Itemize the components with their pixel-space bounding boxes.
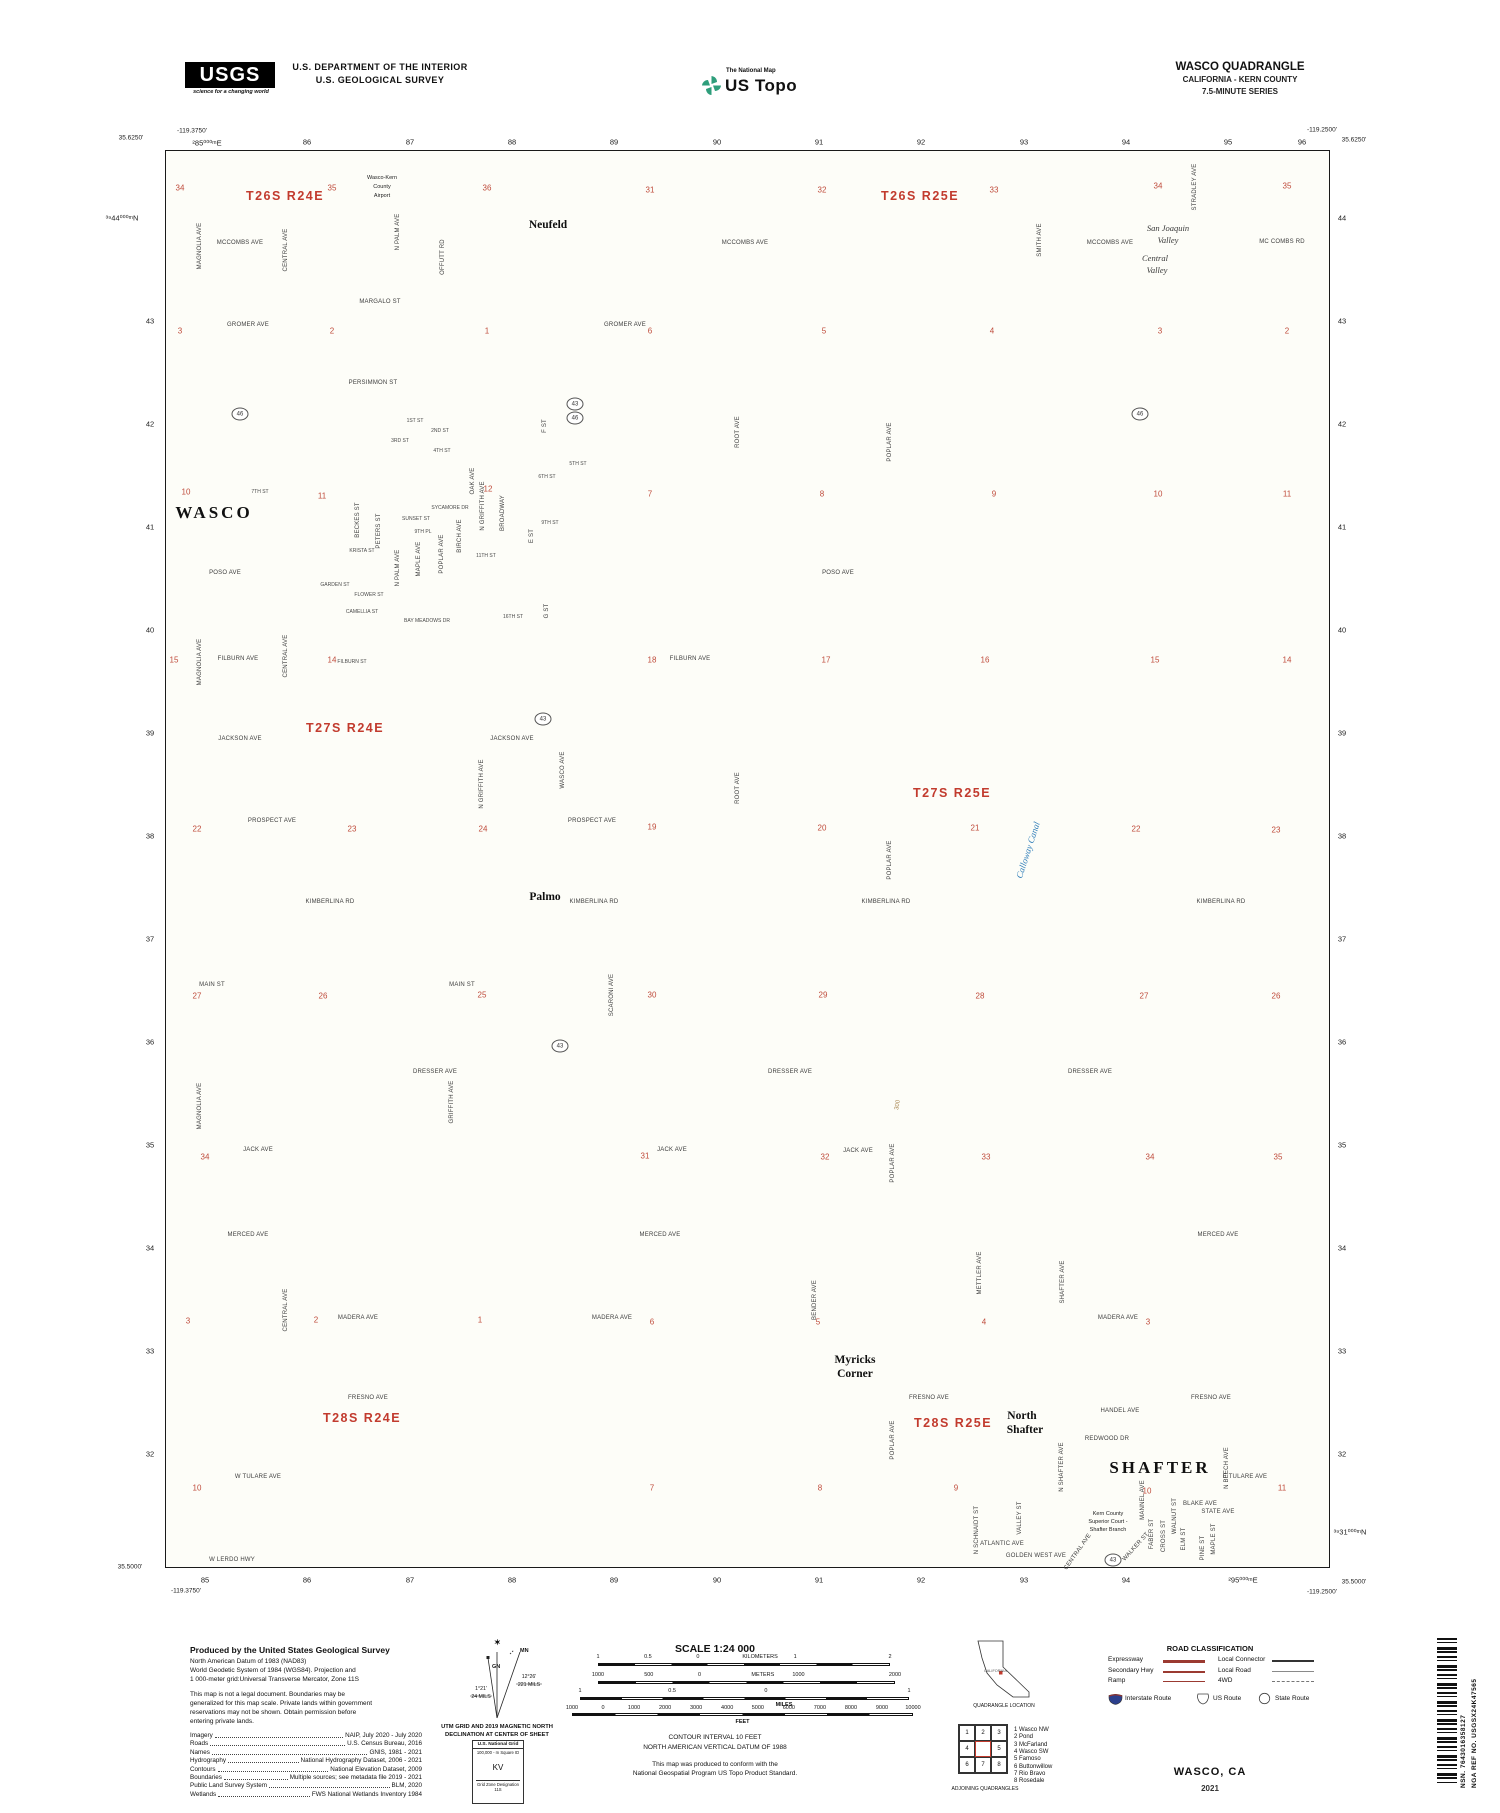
usng-title: U.S. National Grid xyxy=(473,1741,523,1749)
national-map-label: The National Map xyxy=(726,68,776,74)
grid-number-left: 42 xyxy=(146,420,154,429)
footer-text-line: This map is not a legal document. Bounda… xyxy=(190,1691,345,1698)
corner-coordinate: ³⁹44⁰⁰⁰ᵐN xyxy=(106,214,139,223)
scale-bar-label: 0 xyxy=(696,1654,699,1660)
usng-zone: 11S xyxy=(473,1787,523,1792)
grid-number-right: 40 xyxy=(1338,626,1346,635)
grid-number-right: 34 xyxy=(1338,1244,1346,1253)
scale-bar-label: 1 xyxy=(794,1654,797,1660)
roadclass-shield-label: State Route xyxy=(1275,1695,1309,1702)
footer-text-line: reservations may not be shown. Obtain pe… xyxy=(190,1709,356,1716)
declination-diagram xyxy=(430,1600,570,1740)
nsn-number: NSN. 7643016358127 xyxy=(1460,1638,1467,1788)
footer-text-line: entering private lands. xyxy=(190,1718,254,1725)
scale-bar-label: 9000 xyxy=(876,1705,888,1711)
national-map-pinwheel-icon xyxy=(701,75,722,96)
scale-bar-label: 2000 xyxy=(659,1705,671,1711)
scale-bar-label: 500 xyxy=(644,1672,653,1678)
vertical-datum: NORTH AMERICAN VERTICAL DATUM OF 1988 xyxy=(643,1744,787,1751)
quadrangle-title: WASCO QUADRANGLE xyxy=(1090,61,1390,73)
corner-coordinate: 35.6250' xyxy=(1342,137,1367,144)
adjoining-quad-cell: 6 xyxy=(959,1757,975,1773)
grid-number-right: 35 xyxy=(1338,1141,1346,1150)
scale-bar-label: 0 xyxy=(764,1688,767,1694)
grid-number-bottom: 90 xyxy=(713,1576,721,1585)
roadclass-label: Local Road xyxy=(1218,1667,1251,1674)
grid-number-right: 33 xyxy=(1338,1347,1346,1356)
grid-number-left: 34 xyxy=(146,1244,154,1253)
sheet-name: WASCO, CA xyxy=(1110,1766,1310,1778)
metadata-row: HydrographyNational Hydrography Dataset,… xyxy=(190,1757,422,1764)
state-route-shield: 46 xyxy=(232,408,249,421)
scale-title: SCALE 1:24 000 xyxy=(565,1643,865,1655)
roadclass-label: Expressway xyxy=(1108,1656,1143,1663)
grid-number-left: 37 xyxy=(146,935,154,944)
adjoining-quad-name: 7 Rio Bravo xyxy=(1014,1771,1045,1777)
grid-number-top: 87 xyxy=(406,138,414,147)
interstate-route-shield-icon xyxy=(1108,1692,1123,1710)
us-route-shield-icon xyxy=(1196,1692,1210,1710)
corner-coordinate: 35.5000' xyxy=(1342,1579,1367,1586)
state-route-shield-icon xyxy=(1258,1692,1271,1710)
adjoining-quad-name: 3 McFarland xyxy=(1014,1742,1047,1748)
scale-bar-label: 1 xyxy=(578,1688,581,1694)
quadrangle-series: 7.5-MINUTE SERIES xyxy=(1090,87,1390,96)
roadclass-label: 4WD xyxy=(1218,1677,1232,1684)
roadclass-label: Local Connector xyxy=(1218,1656,1265,1663)
dept-line-1: U.S. DEPARTMENT OF THE INTERIOR xyxy=(255,62,505,72)
state-route-shield: 43 xyxy=(1105,1554,1122,1567)
scale-bar-label: 2 xyxy=(888,1654,891,1660)
metadata-row: ImageryNAIP, July 2020 - July 2020 xyxy=(190,1732,422,1739)
grid-number-bottom: 93 xyxy=(1020,1576,1028,1585)
grid-number-top: 89 xyxy=(610,138,618,147)
scale-bar-label: 2000 xyxy=(889,1672,901,1678)
footer-text-line: generalized for this map scale. Private … xyxy=(190,1700,372,1707)
footer-text-line: World Geodetic System of 1984 (WGS84). P… xyxy=(190,1667,356,1674)
roadclass-sample-line xyxy=(1272,1671,1314,1672)
grid-number-left: 39 xyxy=(146,729,154,738)
usgs-topo-sheet: USGS science for a changing world U.S. D… xyxy=(0,0,1500,1813)
scale-bar-label: 1 xyxy=(596,1654,599,1660)
roadclass-sample-line xyxy=(1272,1660,1314,1662)
grid-number-left: 43 xyxy=(146,317,154,326)
grid-number-bottom: 88 xyxy=(508,1576,516,1585)
us-national-grid-box: U.S. National Grid 100,000 - m Square ID… xyxy=(472,1740,524,1804)
adjoining-quad-name: 1 Wasco NW xyxy=(1014,1727,1049,1733)
current-quad-cell xyxy=(975,1741,991,1757)
us-topo-label: US Topo xyxy=(725,76,797,96)
adjoining-quad-name: 6 Buttonwillow xyxy=(1014,1764,1052,1770)
mn-declination-mils: 221 MILS xyxy=(518,1682,540,1688)
grid-number-top: 95 xyxy=(1224,138,1232,147)
scale-bar xyxy=(580,1697,909,1700)
grid-number-top: 96 xyxy=(1298,138,1306,147)
standard-note-1: This map was produced to conform with th… xyxy=(652,1761,778,1768)
adjoining-quad-cell: 2 xyxy=(975,1725,991,1741)
grid-number-top: 93 xyxy=(1020,138,1028,147)
grid-number-right: 32 xyxy=(1338,1450,1346,1459)
metadata-row: WetlandsFWS National Wetlands Inventory … xyxy=(190,1791,422,1798)
corner-coordinate: -119.2500' xyxy=(1307,127,1337,134)
metadata-row: RoadsU.S. Census Bureau, 2016 xyxy=(190,1740,422,1747)
grid-number-top: 92 xyxy=(917,138,925,147)
scale-bar-label: 1 xyxy=(907,1688,910,1694)
grid-number-left: 36 xyxy=(146,1038,154,1047)
metadata-row: Public Land Survey SystemBLM, 2020 xyxy=(190,1782,422,1789)
state-route-shield: 43 xyxy=(535,713,552,726)
scale-bar-label: 8000 xyxy=(845,1705,857,1711)
grid-number-right: 36 xyxy=(1338,1038,1346,1047)
adjoining-quad-cell: 8 xyxy=(991,1757,1007,1773)
state-route-shield: 46 xyxy=(567,412,584,425)
grid-number-top: 90 xyxy=(713,138,721,147)
scale-bar-label: 0.5 xyxy=(668,1688,676,1694)
california-label: CALIFORNIA xyxy=(984,1669,1007,1673)
roadclass-sample-line xyxy=(1272,1681,1314,1682)
usgs-tagline: science for a changing world xyxy=(183,89,279,95)
corner-coordinate: 35.6250' xyxy=(119,135,144,142)
grid-number-top: 86 xyxy=(303,138,311,147)
grid-number-top: 88 xyxy=(508,138,516,147)
barcode xyxy=(1437,1638,1457,1783)
nga-ref-number: NGA REF NO. USGSX24K47565 xyxy=(1471,1638,1478,1788)
grid-number-left: 40 xyxy=(146,626,154,635)
roadclass-sample-line xyxy=(1163,1681,1205,1682)
corner-coordinate: -119.3750' xyxy=(177,128,207,135)
scale-bar-label: 7000 xyxy=(814,1705,826,1711)
adjoining-quadrangles-caption: ADJOINING QUADRANGLES xyxy=(930,1786,1040,1792)
roadclass-label: Ramp xyxy=(1108,1677,1125,1684)
adjoining-quad-cell: 5 xyxy=(991,1741,1007,1757)
grid-number-bottom: 85 xyxy=(201,1576,209,1585)
grid-number-right: 39 xyxy=(1338,729,1346,738)
declination-caption-1: UTM GRID AND 2019 MAGNETIC NORTH xyxy=(441,1724,553,1730)
adjoining-quad-name: 5 Famoso xyxy=(1014,1756,1041,1762)
metadata-row: BoundariesMultiple sources; see metadata… xyxy=(190,1774,422,1781)
corner-coordinate: 35.5000' xyxy=(118,1564,143,1571)
scale-bar-label: 0 xyxy=(601,1705,604,1711)
quadrangle-location-caption: QUADRANGLE LOCATION xyxy=(962,1703,1046,1709)
scale-bar-label: 1000 xyxy=(792,1672,804,1678)
state-route-shield: 43 xyxy=(567,398,584,411)
gn-declination-mils: 24 MILS xyxy=(471,1694,490,1700)
scale-bar-label: 10000 xyxy=(905,1705,920,1711)
adjoining-quad-cell: 7 xyxy=(975,1757,991,1773)
grid-number-bottom: 87 xyxy=(406,1576,414,1585)
declination-caption-2: DECLINATION AT CENTER OF SHEET xyxy=(445,1732,549,1738)
corner-coordinate: ³⁹31⁰⁰⁰ᵐN xyxy=(1334,1528,1367,1537)
footer-text-line: North American Datum of 1983 (NAD83) xyxy=(190,1658,306,1665)
state-route-shield: 43 xyxy=(552,1040,569,1053)
grid-number-bottom: 94 xyxy=(1122,1576,1130,1585)
roadclass-sample-line xyxy=(1163,1660,1205,1663)
grid-number-left: 33 xyxy=(146,1347,154,1356)
grid-number-left: 41 xyxy=(146,523,154,532)
grid-number-left: 32 xyxy=(146,1450,154,1459)
scale-bar-label: 3000 xyxy=(690,1705,702,1711)
grid-number-right: 41 xyxy=(1338,523,1346,532)
scale-bar-label: 1000 xyxy=(566,1705,578,1711)
road-classification-title: ROAD CLASSIFICATION xyxy=(1130,1644,1290,1653)
corner-coordinate: ²95⁰⁰⁰ᵐE xyxy=(1228,1576,1257,1585)
mn-declination-value: 12°26' xyxy=(522,1674,537,1680)
corner-coordinate: -119.3750' xyxy=(171,1588,201,1595)
scale-bar xyxy=(598,1663,890,1666)
sheet-year: 2021 xyxy=(1110,1784,1310,1793)
grid-number-right: 44 xyxy=(1338,214,1346,223)
adjoining-quad-cell: 4 xyxy=(959,1741,975,1757)
roadclass-shield-label: Interstate Route xyxy=(1125,1695,1171,1702)
scale-bar-label: KILOMETERS xyxy=(742,1654,777,1660)
grid-number-bottom: 89 xyxy=(610,1576,618,1585)
map-neatline xyxy=(165,150,1330,1568)
grid-number-right: 42 xyxy=(1338,420,1346,429)
scale-bar xyxy=(598,1681,895,1684)
grid-number-bottom: 86 xyxy=(303,1576,311,1585)
scale-bar-label: METERS xyxy=(751,1672,774,1678)
scale-bar-label: 1000 xyxy=(592,1672,604,1678)
adjoining-quad-name: 2 Pond xyxy=(1014,1734,1033,1740)
scale-bar xyxy=(572,1713,913,1716)
corner-coordinate: -119.2500' xyxy=(1307,1589,1337,1596)
usng-square-id: KV xyxy=(473,1755,523,1772)
usng-subtitle: 100,000 - m Square ID xyxy=(473,1749,523,1755)
grid-number-bottom: 91 xyxy=(815,1576,823,1585)
adjoining-quad-name: 4 Wasco SW xyxy=(1014,1749,1048,1755)
grid-north-label: GN xyxy=(492,1664,500,1670)
roadclass-label: Secondary Hwy xyxy=(1108,1667,1154,1674)
grid-number-bottom: 92 xyxy=(917,1576,925,1585)
gn-declination-value: 1°21' xyxy=(475,1686,487,1692)
grid-number-left: 35 xyxy=(146,1141,154,1150)
corner-coordinate: ²85⁰⁰⁰ᵐE xyxy=(192,139,221,148)
grid-number-right: 38 xyxy=(1338,832,1346,841)
quadrangle-subtitle: CALIFORNIA - KERN COUNTY xyxy=(1090,75,1390,84)
scale-bar-label: 4000 xyxy=(721,1705,733,1711)
metadata-row: NamesGNIS, 1981 - 2021 xyxy=(190,1749,422,1756)
adjoining-quad-name: 8 Rosedale xyxy=(1014,1778,1044,1784)
scale-bar-label: 6000 xyxy=(783,1705,795,1711)
magnetic-north-label: MN xyxy=(520,1648,529,1654)
standard-note-2: National Geospatial Program US Topo Prod… xyxy=(633,1770,797,1777)
scale-bar-unit: FEET xyxy=(735,1719,749,1725)
produced-by: Produced by the United States Geological… xyxy=(190,1645,390,1655)
grid-number-left: 38 xyxy=(146,832,154,841)
scale-bar-label: 5000 xyxy=(752,1705,764,1711)
roadclass-shield-label: US Route xyxy=(1213,1695,1241,1702)
contour-interval: CONTOUR INTERVAL 10 FEET xyxy=(669,1734,762,1741)
metadata-row: ContoursNational Elevation Dataset, 2009 xyxy=(190,1766,422,1773)
dept-line-2: U.S. GEOLOGICAL SURVEY xyxy=(255,75,505,85)
adjoining-quad-cell: 3 xyxy=(991,1725,1007,1741)
true-north-star: ✶ xyxy=(494,1638,501,1647)
grid-number-top: 91 xyxy=(815,138,823,147)
scale-bar-label: 0 xyxy=(698,1672,701,1678)
grid-number-right: 37 xyxy=(1338,935,1346,944)
grid-number-top: 94 xyxy=(1122,138,1130,147)
adjoining-quadrangles-grid: 12345678 xyxy=(958,1724,1008,1774)
footer-text-line: 1 000-meter grid:Universal Transverse Me… xyxy=(190,1676,359,1683)
roadclass-sample-line xyxy=(1163,1671,1205,1673)
grid-number-right: 43 xyxy=(1338,317,1346,326)
scale-bar-label: 0.5 xyxy=(644,1654,652,1660)
scale-bar-label: 1000 xyxy=(628,1705,640,1711)
adjoining-quad-cell: 1 xyxy=(959,1725,975,1741)
state-route-shield: 46 xyxy=(1132,408,1149,421)
